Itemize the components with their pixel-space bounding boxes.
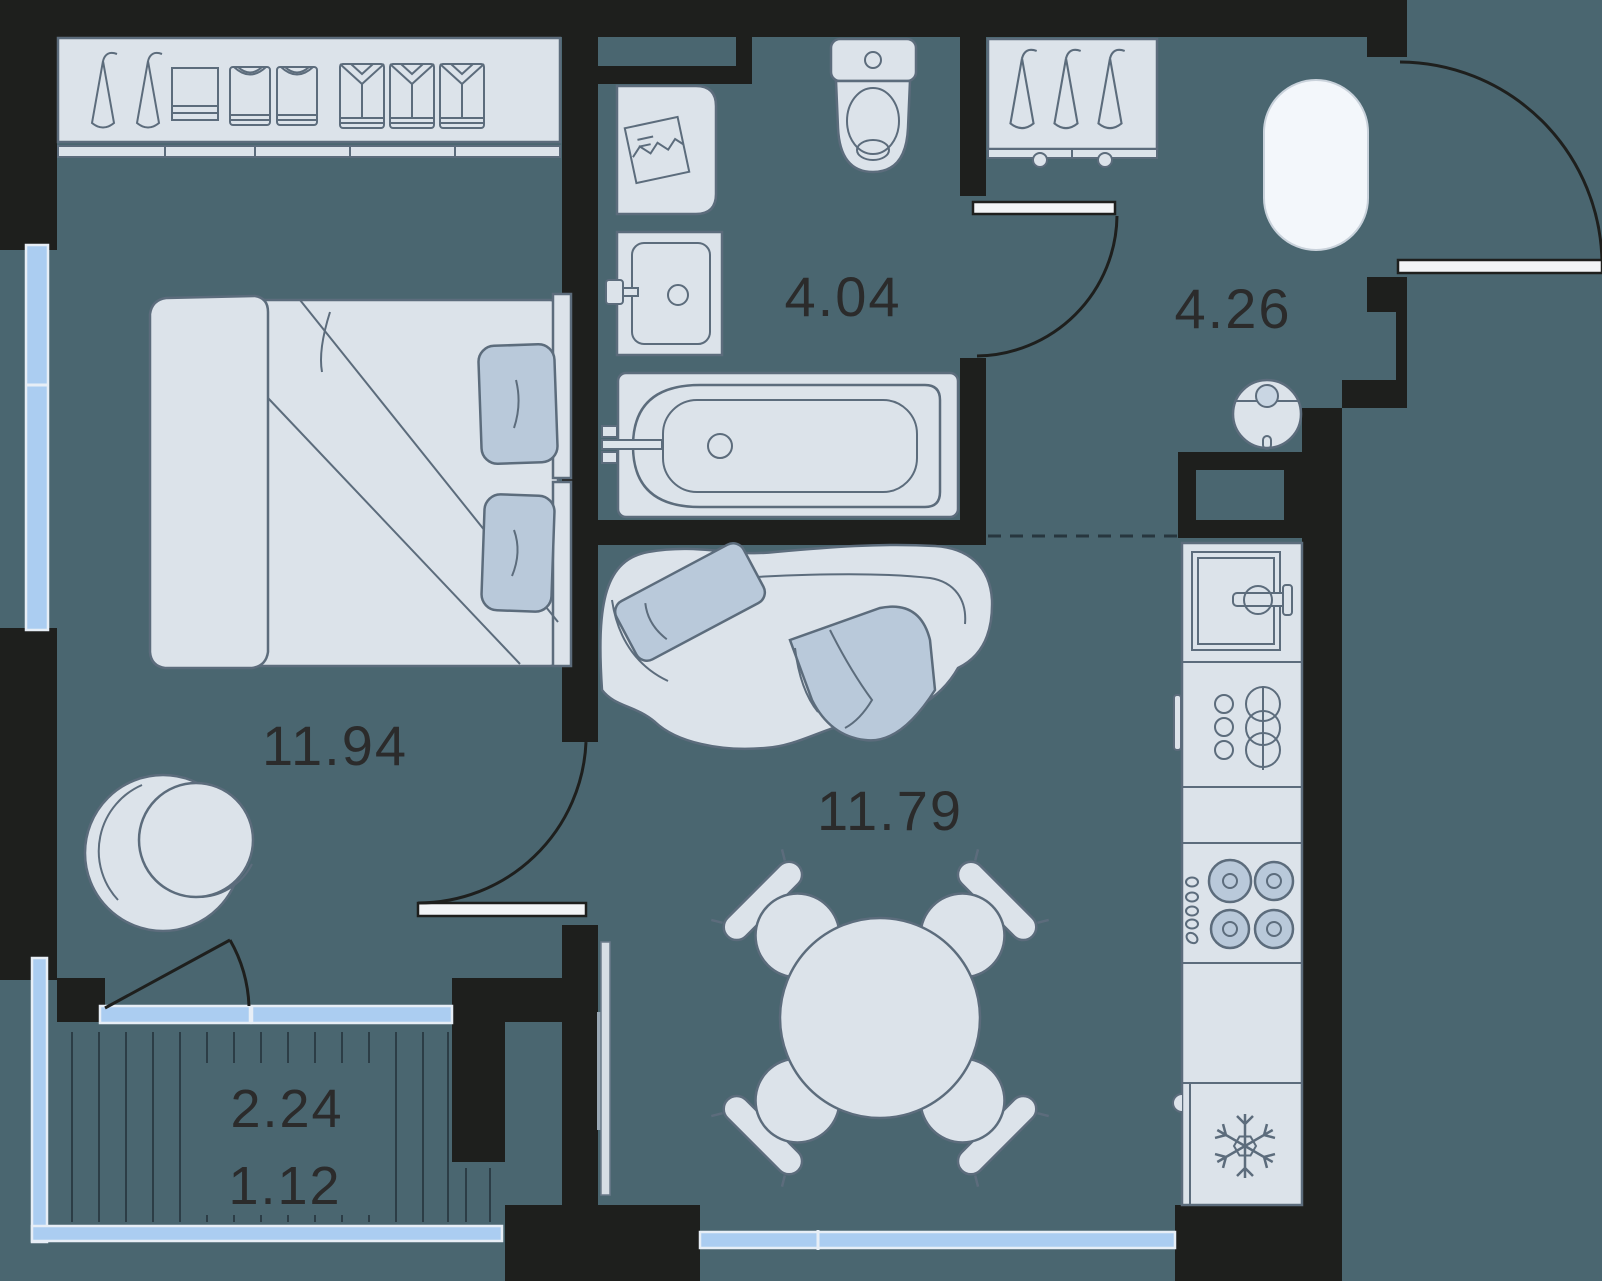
balcony-area-counted-label: 1.12 <box>228 1156 341 1216</box>
wall-segment <box>1302 408 1342 1245</box>
wall-segment <box>592 66 752 84</box>
bedroom-balcony-window <box>252 1006 452 1023</box>
double-bed <box>150 294 571 668</box>
wall-segment <box>562 925 598 1205</box>
wall-segment <box>562 520 986 545</box>
wardrobe-foot <box>1098 153 1112 167</box>
bathtub <box>602 373 958 517</box>
toilet <box>831 39 916 172</box>
wall-segment <box>1175 1205 1342 1281</box>
faucet-icon <box>606 280 623 304</box>
wall-segment <box>736 37 752 67</box>
oval-pouf <box>1264 80 1368 250</box>
bathroom-area-label: 4.04 <box>785 265 902 328</box>
ventilation-shaft <box>1178 452 1302 538</box>
bedroom-window <box>26 245 48 630</box>
wall-segment <box>505 1205 700 1281</box>
wall-segment <box>960 358 986 545</box>
wall-segment <box>0 0 57 250</box>
robot-vacuum <box>1233 380 1301 449</box>
washbasin <box>606 232 722 355</box>
wardrobe-foot <box>1033 153 1047 167</box>
wall-segment <box>1367 277 1407 312</box>
wall-segment <box>1367 37 1407 57</box>
round-dining-table <box>780 918 980 1118</box>
wall-segment <box>960 37 986 196</box>
hallway-wardrobe <box>988 39 1157 167</box>
living-kitchen-area-label: 11.79 <box>817 779 963 842</box>
wall-segment <box>452 978 598 1022</box>
balcony-area-total-label: 2.24 <box>230 1079 343 1139</box>
wall-segment <box>452 1022 505 1162</box>
kitchen-unit <box>1173 543 1302 1205</box>
robot-sensor <box>1256 385 1278 407</box>
wall-segment <box>57 978 105 1022</box>
wall-segment <box>0 628 57 980</box>
living-room-window <box>700 1230 1175 1250</box>
bedroom-area-label: 11.94 <box>262 714 408 777</box>
washing-machine <box>617 86 716 214</box>
hallway-area-label: 4.26 <box>1175 277 1292 340</box>
floor-plan: 11.94 4.04 4.26 11.79 2.24 1.12 <box>0 0 1602 1281</box>
wall-segment <box>0 0 1407 37</box>
faucet-icon <box>1233 593 1290 606</box>
bedroom-wardrobe <box>58 38 560 157</box>
wall-segment <box>1342 380 1407 408</box>
